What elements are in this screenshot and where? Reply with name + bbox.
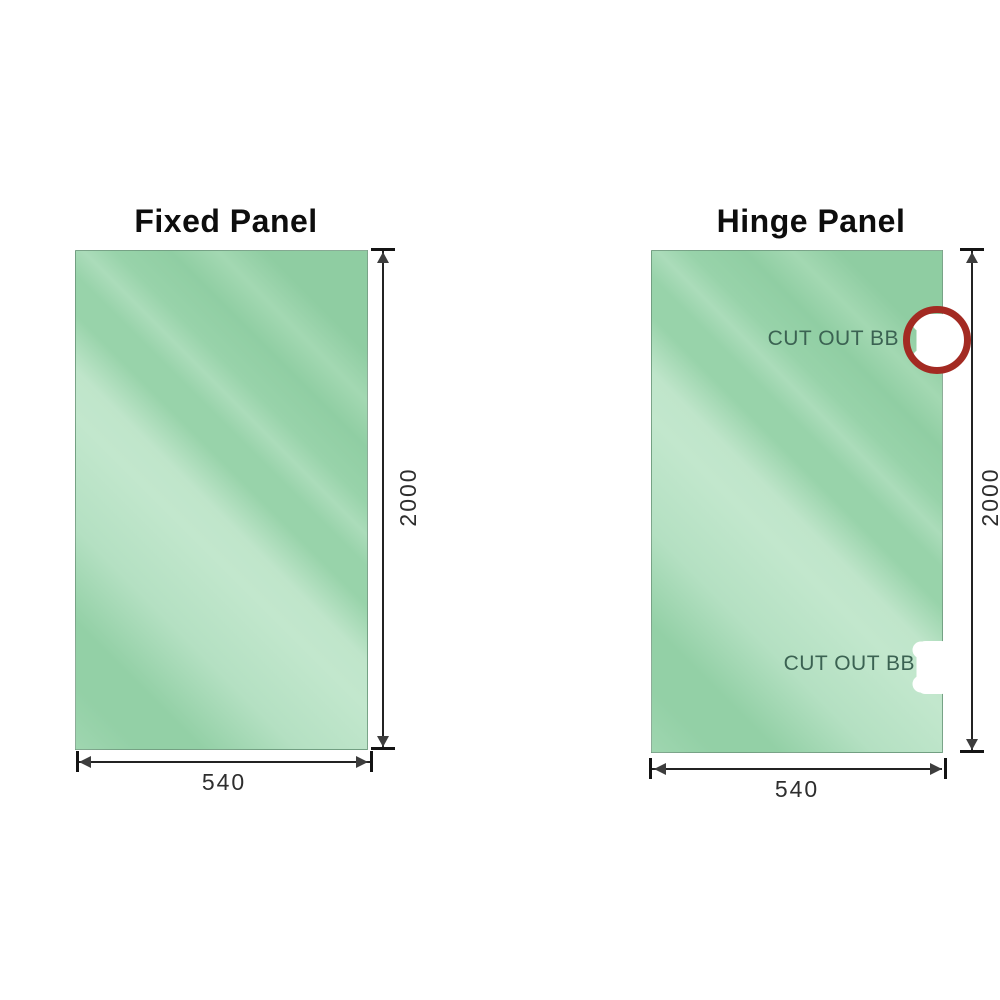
arrow-down-icon xyxy=(966,739,978,750)
arrow-left-icon xyxy=(654,763,666,775)
arrow-right-icon xyxy=(930,763,942,775)
cutout-label-top: CUT OUT BB xyxy=(768,327,899,351)
shower-panel-diagram: Fixed Panel 2000 540 Hinge Panel CUT OUT… xyxy=(0,0,1000,1000)
dimension-tick xyxy=(944,758,947,779)
hinge-width-dimension-line xyxy=(652,768,942,770)
dimension-tick xyxy=(960,248,984,251)
fixed-panel-title: Fixed Panel xyxy=(76,203,376,240)
arrow-left-icon xyxy=(79,756,91,768)
hinge-panel-glass xyxy=(651,250,943,753)
arrow-down-icon xyxy=(377,736,389,747)
cutout-label-bottom: CUT OUT BB xyxy=(784,652,915,676)
hinge-height-dimension-line xyxy=(971,250,973,752)
fixed-panel-height-label: 2000 xyxy=(396,452,420,542)
dimension-tick xyxy=(960,750,984,753)
fixed-panel-glass xyxy=(75,250,368,750)
arrow-up-icon xyxy=(377,252,389,263)
fixed-width-dimension-line xyxy=(77,761,371,763)
fixed-panel-width-label: 540 xyxy=(124,769,324,796)
arrow-right-icon xyxy=(356,756,368,768)
hinge-panel-width-label: 540 xyxy=(697,776,897,803)
arrow-up-icon xyxy=(966,252,978,263)
dimension-tick xyxy=(371,248,395,251)
fixed-height-dimension-line xyxy=(382,250,384,750)
hinge-panel-title: Hinge Panel xyxy=(661,203,961,240)
dimension-tick xyxy=(649,758,652,779)
cutout-highlight-ring-icon xyxy=(903,306,971,374)
dimension-tick xyxy=(371,747,395,750)
hinge-panel-height-label: 2000 xyxy=(978,452,1000,542)
dimension-tick xyxy=(370,751,373,772)
